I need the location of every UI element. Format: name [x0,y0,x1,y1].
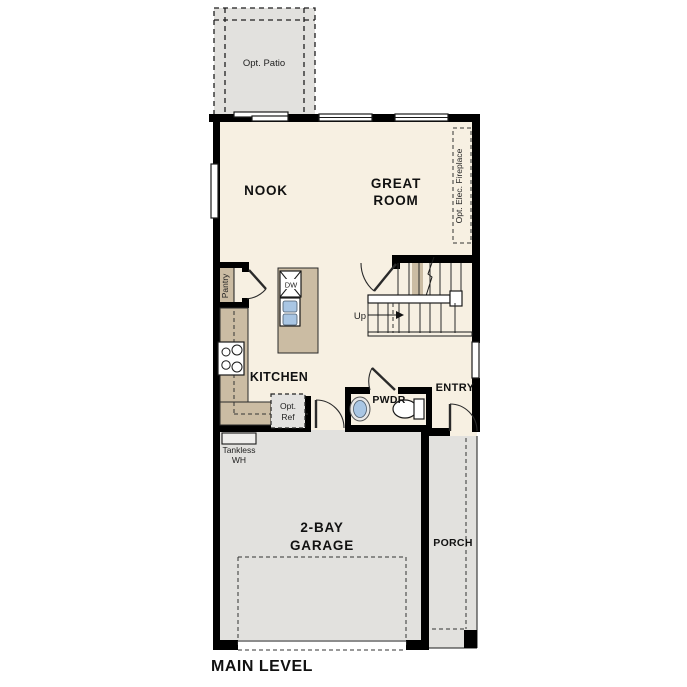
opt-ref-label-line2: Ref [281,412,295,422]
pantry-label: Pantry [220,273,230,298]
stair-newel-post [450,291,462,306]
fireplace-label: Opt. Elec. Fireplace [454,148,464,223]
wall-powder-bottom [345,425,432,432]
window-nook-left [211,164,218,218]
sink-basin [283,314,297,325]
wall-pantry-jamb-top [242,262,249,272]
sink-basin [283,301,297,312]
wall-right-mid [472,262,480,343]
porch-label: PORCH [433,537,472,549]
wall-entry-bottom [429,428,450,436]
stair-handrail [368,295,450,303]
floor-plan: Opt. Elec. Fireplace Pantry DW Opt. Ref [0,0,687,687]
wall-garage-right [421,428,429,650]
nook-label: NOOK [244,183,288,198]
floor-plan-drawing: Opt. Elec. Fireplace Pantry DW Opt. Ref [0,0,687,687]
powder-label: PWDR [372,394,405,406]
dishwasher-label: DW [285,281,298,290]
kitchen-label: KITCHEN [250,370,308,384]
wall-garage-bottom-right [406,640,429,650]
garage-label-line1: 2-BAY [300,520,343,535]
wall-right-upper [472,114,480,262]
stairs-up-label: Up [354,311,366,322]
sliding-door-panel-inner [252,116,288,121]
window-entry-right [472,342,479,378]
great-room-label-line1: GREAT [371,176,421,191]
powder-sink-basin [354,401,367,418]
garage-label-line2: GARAGE [290,538,354,553]
range-cooktop [218,342,244,375]
garage-floor [220,430,421,642]
opt-ref-box [271,394,305,428]
tankless-label-line2: WH [232,455,246,465]
wall-pantry-jamb-bottom [242,298,249,308]
great-room-label-line2: ROOM [373,193,418,208]
wall-stairs-top [392,255,480,263]
wall-porch-step [464,630,477,648]
patio-label: Opt. Patio [243,58,285,69]
opt-ref-label-line1: Opt. [280,401,296,411]
tankless-label-line1: Tankless [222,445,255,455]
main-level-title: MAIN LEVEL [211,658,313,675]
entry-label: ENTRY [436,382,475,394]
wall-garage-bottom-left [213,640,238,650]
stair-landing-tread [412,263,423,295]
tankless-water-heater [222,433,256,444]
toilet-tank [414,399,424,419]
